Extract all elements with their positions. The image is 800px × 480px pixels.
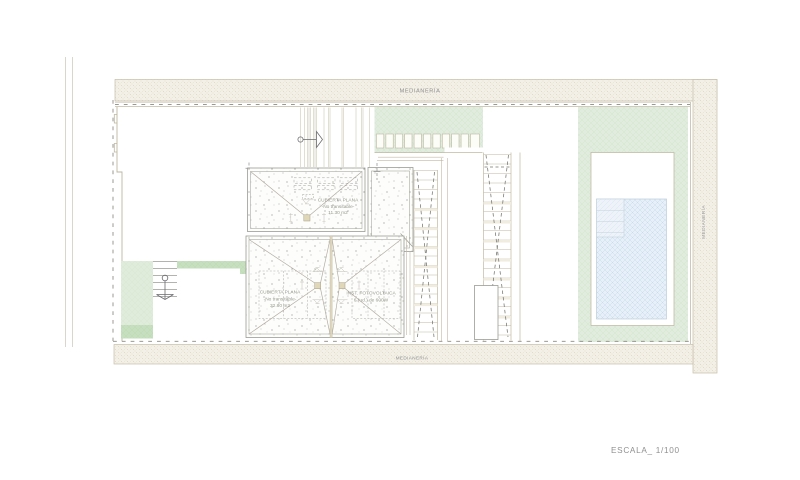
svg-text:-No transitable-: -No transitable- xyxy=(322,204,355,210)
svg-text:11.30 m2: 11.30 m2 xyxy=(328,210,348,216)
svg-text:32.80 m2: 32.80 m2 xyxy=(270,303,290,309)
svg-text:CUBIERTA PLANA: CUBIERTA PLANA xyxy=(318,198,359,204)
svg-text:MEDIANERÍA: MEDIANERÍA xyxy=(700,205,707,239)
svg-text:INST. FOTOVOLTAICA: INST. FOTOVOLTAICA xyxy=(346,291,396,297)
svg-text:CUBIERTA PLANA: CUBIERTA PLANA xyxy=(260,290,301,296)
svg-text:ESCALA_ 1/100: ESCALA_ 1/100 xyxy=(611,446,680,455)
svg-text:-No transitable-: -No transitable- xyxy=(264,296,297,302)
svg-text:6 (ud.) de 600W: 6 (ud.) de 600W xyxy=(354,298,389,304)
svg-text:MEDIANERÍA: MEDIANERÍA xyxy=(400,88,441,95)
svg-text:MEDIANERÍA: MEDIANERÍA xyxy=(396,355,429,361)
